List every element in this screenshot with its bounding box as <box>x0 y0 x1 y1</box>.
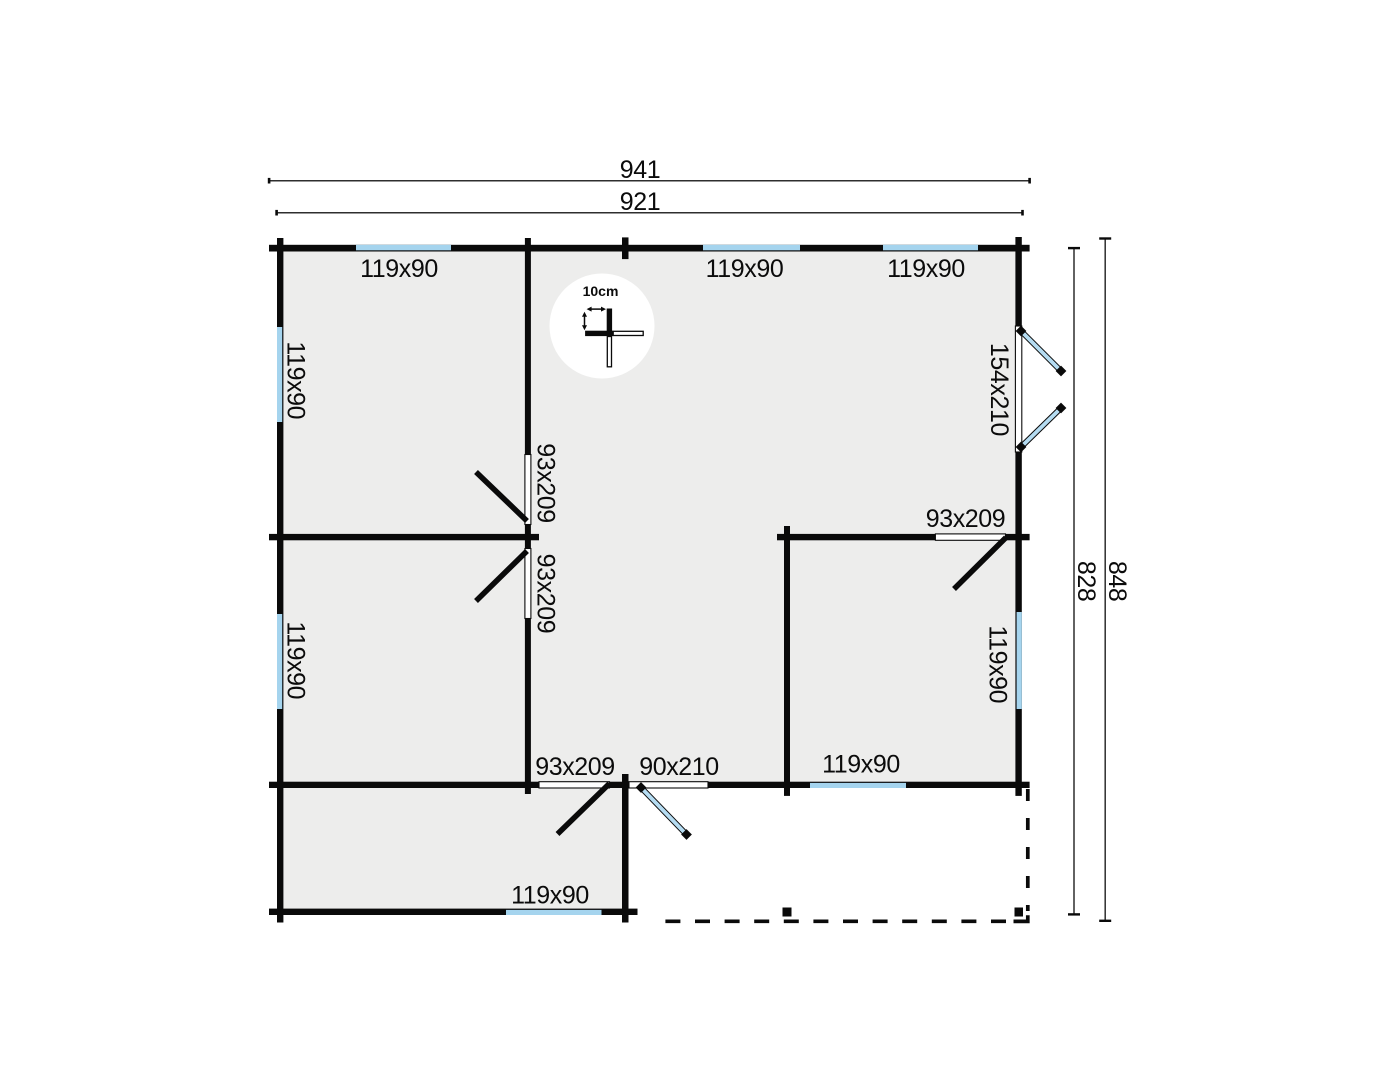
svg-text:119x90: 119x90 <box>511 882 589 910</box>
svg-text:90x210: 90x210 <box>639 753 719 781</box>
svg-text:119x90: 119x90 <box>360 255 438 283</box>
svg-text:10cm: 10cm <box>583 283 619 299</box>
svg-text:848: 848 <box>1103 561 1131 602</box>
svg-text:921: 921 <box>620 188 661 216</box>
svg-text:119x90: 119x90 <box>822 751 900 779</box>
svg-text:828: 828 <box>1072 561 1100 602</box>
svg-text:93x209: 93x209 <box>531 554 559 634</box>
svg-text:119x90: 119x90 <box>282 341 310 419</box>
svg-text:941: 941 <box>620 156 661 184</box>
svg-text:154x210: 154x210 <box>985 343 1013 436</box>
svg-text:93x209: 93x209 <box>535 753 615 781</box>
svg-text:119x90: 119x90 <box>282 621 310 699</box>
svg-text:93x209: 93x209 <box>531 443 559 523</box>
svg-text:119x90: 119x90 <box>887 255 965 283</box>
svg-text:93x209: 93x209 <box>926 505 1006 533</box>
svg-text:119x90: 119x90 <box>706 255 784 283</box>
svg-text:119x90: 119x90 <box>983 625 1011 703</box>
